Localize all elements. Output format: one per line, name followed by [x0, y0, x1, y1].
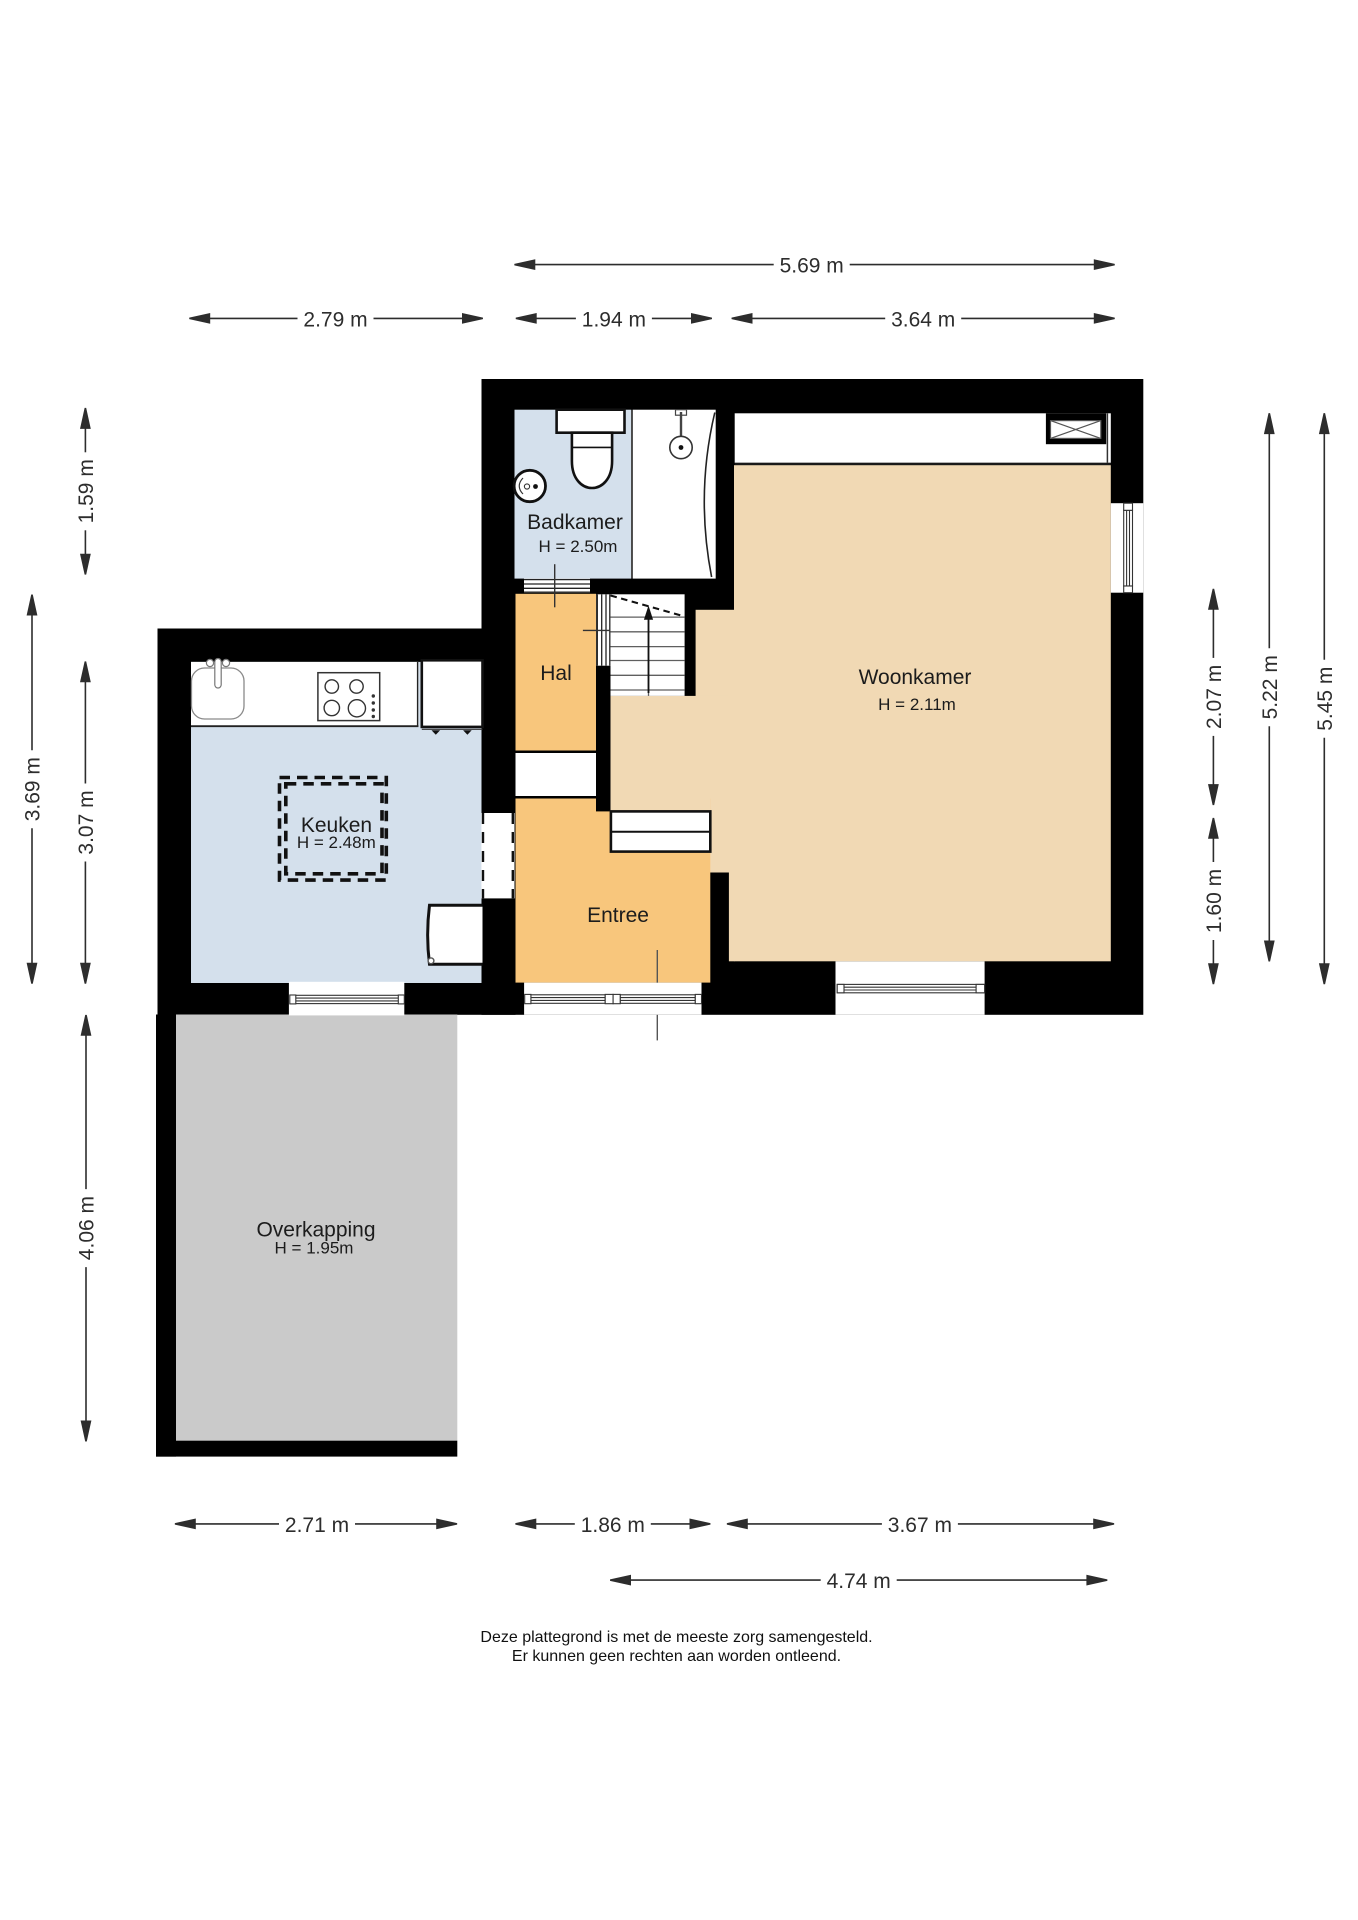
- svg-text:H = 2.48m: H = 2.48m: [297, 833, 376, 852]
- svg-text:Woonkamer: Woonkamer: [859, 666, 972, 689]
- svg-text:H = 2.50m: H = 2.50m: [539, 537, 618, 556]
- svg-text:3.07 m: 3.07 m: [75, 790, 98, 854]
- svg-text:3.69 m: 3.69 m: [22, 757, 45, 821]
- svg-text:1.60 m: 1.60 m: [1203, 869, 1226, 933]
- svg-text:H = 2.11m: H = 2.11m: [878, 695, 956, 714]
- svg-text:Deze plattegrond is met de mee: Deze plattegrond is met de meeste zorg s…: [480, 1629, 872, 1646]
- svg-text:3.64 m: 3.64 m: [891, 308, 955, 331]
- svg-text:5.22 m: 5.22 m: [1259, 655, 1282, 719]
- svg-text:1.86 m: 1.86 m: [581, 1514, 645, 1537]
- svg-text:1.94 m: 1.94 m: [582, 308, 646, 331]
- svg-text:Er kunnen geen rechten aan wor: Er kunnen geen rechten aan worden ontlee…: [512, 1648, 841, 1665]
- svg-text:1.59 m: 1.59 m: [75, 459, 98, 523]
- svg-text:2.71 m: 2.71 m: [285, 1514, 349, 1537]
- svg-text:5.69 m: 5.69 m: [780, 255, 844, 278]
- svg-text:Hal: Hal: [540, 662, 572, 685]
- svg-text:2.07 m: 2.07 m: [1203, 665, 1226, 729]
- svg-text:4.06 m: 4.06 m: [76, 1196, 99, 1260]
- svg-text:2.79 m: 2.79 m: [303, 308, 367, 331]
- svg-text:H = 1.95m: H = 1.95m: [275, 1239, 354, 1258]
- svg-text:4.74 m: 4.74 m: [827, 1570, 891, 1593]
- svg-text:3.67 m: 3.67 m: [888, 1514, 952, 1537]
- svg-text:5.45 m: 5.45 m: [1314, 667, 1337, 731]
- svg-text:Entree: Entree: [587, 904, 649, 927]
- svg-text:Badkamer: Badkamer: [527, 511, 623, 534]
